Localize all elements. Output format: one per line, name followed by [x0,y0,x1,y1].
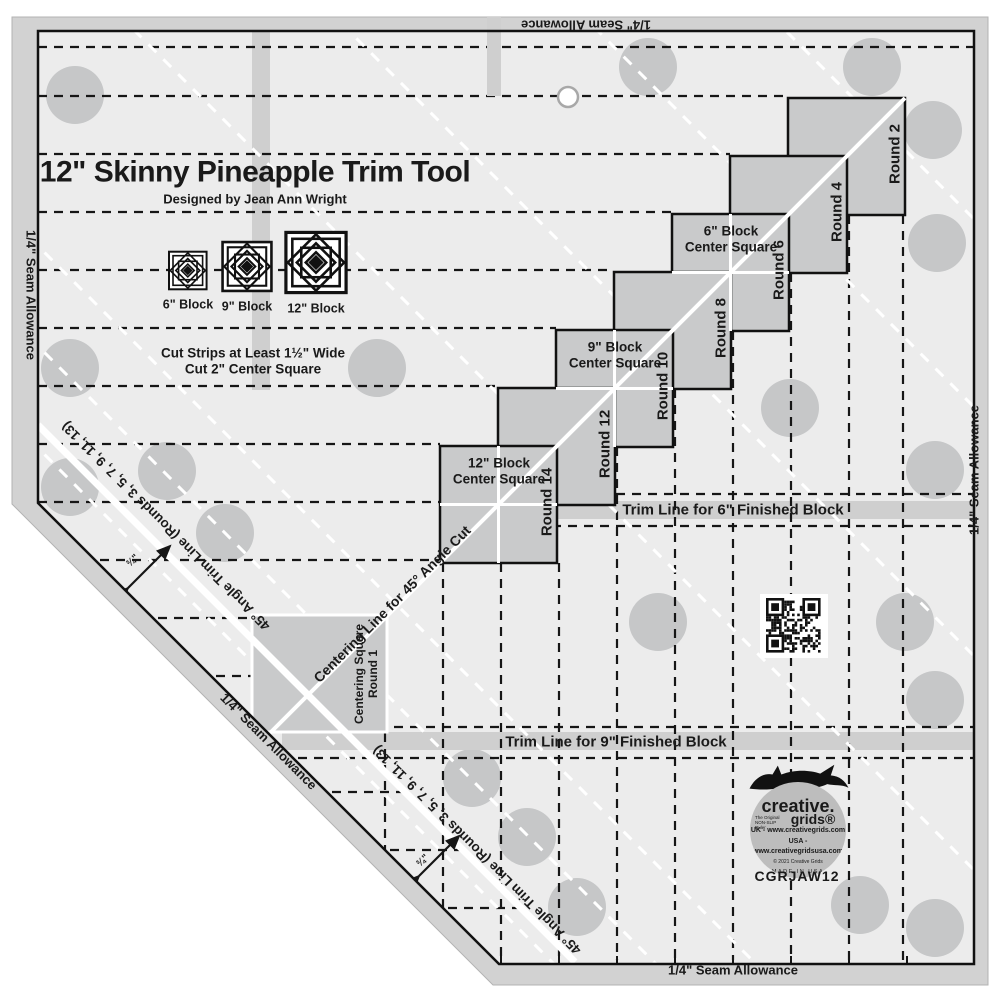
pineapple-block-icon [284,231,348,300]
block-size-label: 12" Block [287,302,344,316]
center-square-title-text: 6" Block [685,223,777,239]
center-square-title-text: 12" Block [453,455,545,471]
round-label-text: Round 2 [886,124,903,184]
pineapple-block-icon [168,251,208,296]
centering-square-label-text: Centering Square [353,624,367,724]
instruction-line-2: Cut 2" Center Square [161,361,345,377]
center-square-title-text: Center Square [569,355,661,371]
centering-square-label: Centering SquareRound 1 [353,624,381,724]
seam-allowance-top: 1/4" Seam Allowance [521,17,651,32]
instruction-line-1: Cut Strips at Least 1½" Wide [161,345,345,361]
block-sample-6: 6" Block [163,251,213,312]
center-square-title-text: Center Square [453,471,545,487]
center-square-title-text: 9" Block [569,339,661,355]
designer-credit: Designed by Jean Ann Wright [40,192,470,207]
round-label: Round 2 [886,124,903,184]
round-label-text: Round 12 [596,410,613,478]
grip-dot [906,899,964,957]
grip-dot [904,101,962,159]
center-square-title-text: Center Square [685,239,777,255]
grip-dot [138,442,196,500]
pineapple-block-icon [221,241,273,298]
page-title: 12" Skinny Pineapple Trim Tool [40,155,470,190]
seam-allowance-left: 1/4" Seam Allowance [23,230,38,360]
centering-square-label-text: Round 1 [367,624,381,724]
logo-url-usa: USA - www.creativegridsusa.com [750,837,846,858]
trim-line-9-label: Trim Line for 9" Finished Block [505,733,726,750]
grip-dot [629,593,687,651]
round-label: Round 4 [828,182,845,242]
logo-copyright: © 2021 Creative Grids [750,859,846,865]
block-size-label: 9" Block [222,300,272,314]
logo-tagline: The Original NON-SLIP Ruler [755,816,785,831]
center-square-title: 6" BlockCenter Square [685,223,777,254]
block-size-label: 6" Block [163,298,213,312]
round-label-text: Round 14 [538,468,555,536]
vertical-band-top [487,17,501,96]
seam-allowance-right: 1/4" Seam Allowance [968,405,983,535]
grip-dot [831,876,889,934]
vertical-band [252,31,270,390]
tool-title: 12" Skinny Pineapple Trim Tool Designed … [40,155,470,206]
creative-grids-logo: The Original NON-SLIP Ruler creative. gr… [740,766,858,878]
grip-dot [41,458,99,516]
round-label: Round 14 [538,468,555,536]
round-label: Round 10 [654,352,671,420]
grip-dot [906,671,964,729]
round-label-text: Round 6 [770,240,787,300]
center-square-title: 9" BlockCenter Square [569,339,661,370]
round-label: Round 12 [596,410,613,478]
block-sample-9: 9" Block [221,241,273,314]
cutting-instructions: Cut Strips at Least 1½" Wide Cut 2" Cent… [161,345,345,376]
grip-dot [906,441,964,499]
trim-line-6-label: Trim Line for 6" Finished Block [622,501,843,518]
round-label: Round 6 [770,240,787,300]
round-label-text: Round 8 [712,298,729,358]
center-square-title: 12" BlockCenter Square [453,455,545,486]
block-sample-12: 12" Block [284,231,348,316]
logo-circle: The Original NON-SLIP Ruler creative. gr… [750,782,846,878]
product-code: CGRJAW12 [754,868,839,884]
qr-code-pattern [764,596,824,656]
grip-dot [348,339,406,397]
hanging-hole [558,87,578,107]
grip-dot [41,339,99,397]
qr-code [760,594,828,658]
pineapple-trim-tool-image: 1/4" Seam Allowance 1/4" Seam Allowance … [0,0,1000,1000]
round-label-text: Round 4 [828,182,845,242]
round-label: Round 8 [712,298,729,358]
round-label-text: Round 10 [654,352,671,420]
grip-dot [908,214,966,272]
seam-allowance-bottom: 1/4" Seam Allowance [668,964,798,979]
grip-dot [876,593,934,651]
